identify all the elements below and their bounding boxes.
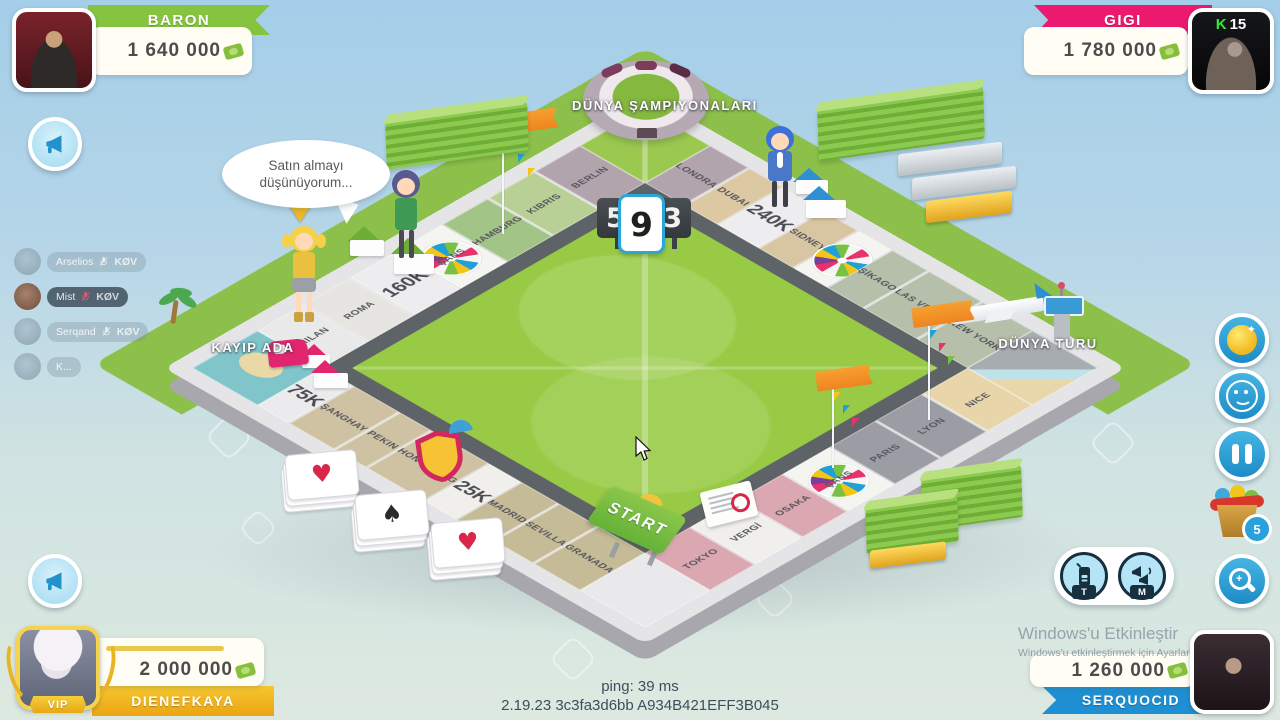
tile-label: SEVILLA — [522, 520, 570, 548]
chat-chip: MistKØV — [47, 287, 128, 307]
tile-label: OSAKA — [771, 494, 813, 518]
tile-label: VERGİ — [727, 521, 765, 543]
player-avatar-serquocid[interactable] — [1190, 630, 1274, 714]
talk-button[interactable]: T — [1060, 552, 1108, 600]
card-suit: ♥ — [456, 527, 480, 557]
megaphone-tag: M — [1130, 585, 1154, 599]
corner-label-world-tour: DÜNYA TURU — [988, 336, 1108, 351]
mic-icon — [98, 256, 109, 267]
player-money-panel: 2 000 000 — [92, 638, 264, 686]
vip-badge: VIP — [30, 696, 86, 713]
card-suit: ♥ — [310, 459, 334, 489]
mic-icon — [80, 291, 91, 302]
tile-label: KIBRIS — [523, 192, 564, 215]
chat-chip: SerqandKØV — [47, 322, 148, 342]
chat-row[interactable]: K... — [14, 353, 148, 380]
chat-clan-tag: KØV — [96, 291, 119, 303]
money-bill-icon — [1167, 662, 1189, 680]
chat-row[interactable]: SerqandKØV — [14, 318, 148, 345]
chat-chip: ArseliosKØV — [47, 252, 146, 272]
bucket-count-badge: 5 — [1242, 514, 1272, 544]
tile-label: LONDRA — [673, 162, 721, 190]
player-avatar-gigi[interactable]: K15 — [1188, 8, 1274, 94]
chat-name: Serqand — [56, 326, 96, 338]
player-money: 1 640 000 — [127, 40, 221, 62]
emote-button[interactable] — [1215, 369, 1269, 423]
player-name: SERQUOCID — [1082, 692, 1180, 708]
money-bill-icon — [1159, 42, 1181, 60]
tile-label: ROMA — [340, 299, 377, 320]
megaphone-icon — [42, 568, 68, 594]
house-pink — [314, 360, 348, 388]
tile-label: DUBAI — [714, 185, 753, 207]
sky-square-decor — [549, 635, 597, 683]
k-level-badge: K15 — [1192, 16, 1270, 33]
comm-pill: T M — [1054, 547, 1174, 605]
tile-label: PARIS — [867, 442, 904, 463]
chat-avatar — [14, 353, 41, 380]
xp-progress-bar — [106, 646, 224, 651]
chat-avatar — [14, 318, 41, 345]
chat-chip: K... — [47, 357, 81, 377]
player-name: GIGI — [1104, 12, 1142, 29]
tile-label: BERLIN — [568, 165, 612, 190]
tile-label: TOKYO — [679, 547, 721, 571]
house-green — [350, 226, 384, 256]
chat-name: K... — [56, 361, 72, 373]
chat-row[interactable]: MistKØV — [14, 283, 148, 310]
announce-button-top[interactable] — [28, 117, 82, 171]
announce-button-bottom[interactable] — [28, 554, 82, 608]
card-stack: ♥ — [282, 452, 356, 506]
broadcast-button[interactable]: M — [1118, 552, 1166, 600]
chat-clan-tag: KØV — [117, 326, 140, 338]
zoom-in-icon: + — [1227, 566, 1257, 596]
smiley-icon — [1226, 380, 1258, 412]
player-name: BARON — [148, 12, 211, 29]
card-stack: ♥ — [428, 520, 502, 574]
mouse-cursor — [634, 436, 652, 462]
game-screen: LONDRADUBAI240KSIDNEYŞANSŞİKAGOLAS VEGAS… — [0, 0, 1280, 720]
corner-label-stadium: DÜNYA ŞAMPIYONALARI — [572, 98, 722, 113]
chat-name: Arselios — [56, 256, 93, 268]
card-stack: ♠ — [352, 492, 426, 546]
shield-icon — [413, 427, 468, 485]
flag-pole — [832, 376, 834, 468]
chat-row[interactable]: ArseliosKØV — [14, 248, 148, 275]
chat-clan-tag: KØV — [114, 256, 137, 268]
megaphone-icon — [42, 131, 68, 157]
pause-icon — [1232, 444, 1239, 464]
money-bill-icon — [223, 42, 245, 60]
money-bill-icon — [235, 661, 257, 679]
tile-label: PEKIN — [364, 429, 402, 451]
speech-bubble: Satın almayı düşünüyorum... — [222, 140, 390, 208]
character-purple-woman — [382, 170, 430, 270]
player-avatar-baron[interactable] — [12, 8, 96, 92]
player-money-panel: 1 640 000 — [90, 27, 252, 75]
tile-label: ŞİKAGO — [855, 266, 900, 292]
corner-label-lost-island: KAYIP ADA — [198, 340, 308, 355]
zoom-in-button[interactable]: + — [1215, 554, 1269, 608]
tile-label: NICE — [962, 390, 994, 408]
house-blue — [806, 186, 846, 218]
player-banner-bottom-left: DIENEFKAYA — [92, 686, 274, 716]
talk-tag: T — [1072, 585, 1096, 599]
coin-icon — [1227, 325, 1257, 355]
chat-list: ArseliosKØVMistKØVSerqandKØVK... — [14, 248, 148, 388]
player-money: 1 780 000 — [1063, 40, 1157, 62]
dice-result-card: 9 — [618, 194, 665, 254]
coin-button[interactable] — [1215, 313, 1269, 367]
player-name: DIENEFKAYA — [131, 693, 234, 709]
tile-label: LYON — [914, 416, 948, 436]
mic-icon — [101, 326, 112, 337]
flag-pole — [928, 312, 930, 420]
tile-label: HAMBURG — [469, 214, 526, 247]
player-money-panel: 1 780 000 — [1024, 27, 1188, 75]
character-blue-businessman — [756, 126, 804, 214]
player-money: 1 260 000 — [1071, 660, 1165, 682]
chat-avatar — [14, 248, 41, 275]
tile-label: ŞANGHAY — [317, 402, 371, 433]
chat-avatar — [14, 283, 41, 310]
player-money: 2 000 000 — [139, 659, 233, 681]
character-blonde-girl — [278, 226, 332, 326]
card-suit: ♠ — [380, 499, 404, 529]
prize-bucket-button[interactable]: 5 — [1210, 488, 1266, 540]
chat-name: Mist — [56, 291, 75, 303]
pause-button[interactable] — [1215, 427, 1269, 481]
palm-tree-icon — [160, 288, 194, 328]
sky-square-decor — [1089, 419, 1137, 467]
tile-label: GRANADA — [562, 542, 618, 574]
